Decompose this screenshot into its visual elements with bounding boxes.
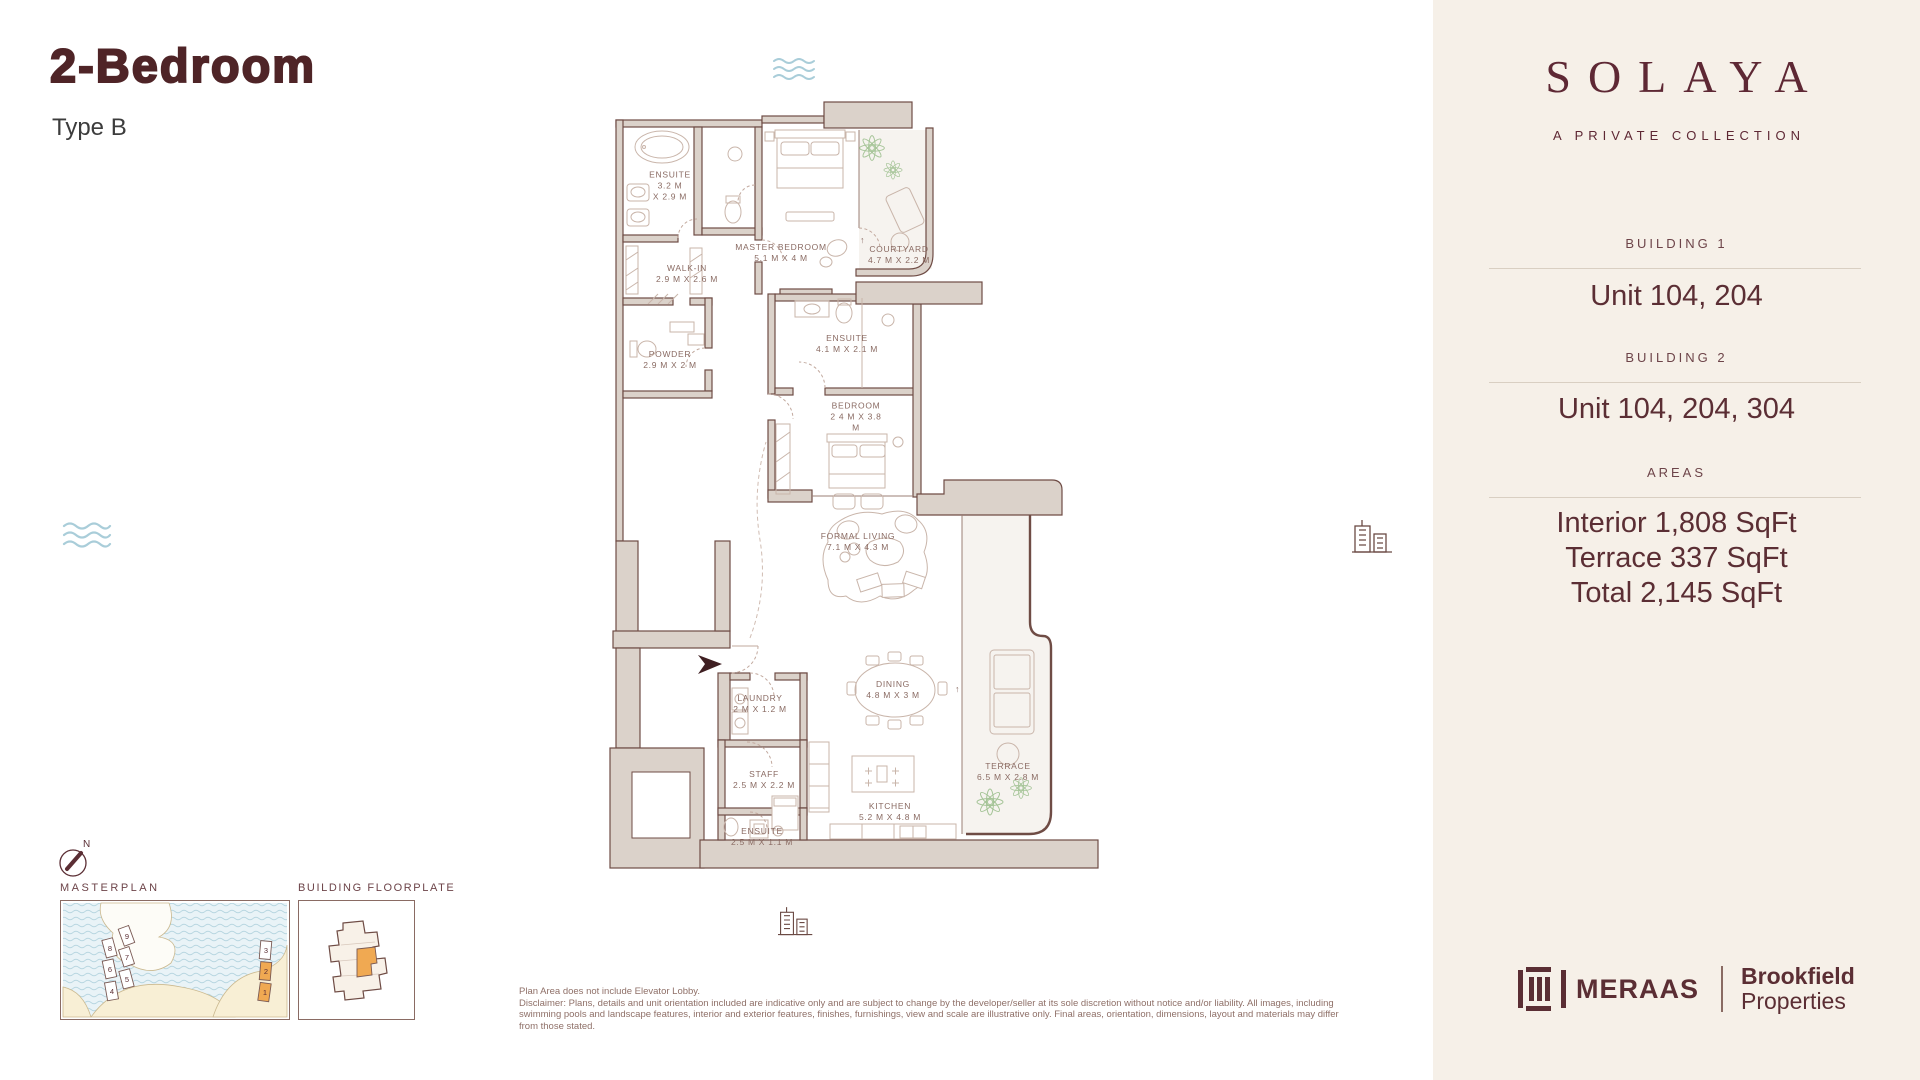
masterplan-label: MASTERPLAN [60, 882, 160, 894]
brookfield-wordmark: Brookfield Properties [1741, 964, 1855, 1014]
compass-n-label: N [83, 839, 90, 850]
floorplate-thumbnail [298, 900, 415, 1020]
compass-icon: N [52, 836, 98, 882]
areas-label: AREAS [1433, 465, 1920, 480]
svg-text:1: 1 [263, 988, 267, 997]
divider [1489, 382, 1861, 383]
svg-text:8: 8 [108, 944, 112, 953]
brand-logo: SOLAYA [1433, 50, 1920, 103]
area-terrace: Terrace 337 SqFt [1433, 541, 1920, 576]
elevator-shaft [632, 772, 690, 838]
wave-icon [60, 520, 112, 550]
masterplan-thumbnail: 8 9 6 7 4 5 3 2 1 [60, 900, 290, 1020]
arrow-up-glyph: ↑ [860, 235, 865, 245]
arrow-up-glyph: ↑ [955, 684, 960, 694]
divider [1489, 268, 1861, 269]
sidebar: SOLAYA A PRIVATE COLLECTION BUILDING 1 U… [1433, 0, 1920, 1080]
building2-label: BUILDING 2 [1433, 350, 1920, 365]
logo-divider [1721, 966, 1723, 1012]
floorplan: ↑ ↑ ENSUITE3.2 M X 2.9 M MASTER BEDROOM5… [600, 90, 1120, 890]
disclaimer: Plan Area does not include Elevator Lobb… [519, 986, 1359, 1032]
page-subtitle: Type B [52, 114, 127, 142]
door-swings [678, 185, 880, 829]
meraas-icon [1518, 967, 1566, 1011]
area-interior: Interior 1,808 SqFt [1433, 506, 1920, 541]
wave-icon [770, 56, 816, 82]
floorplan-drawing: ↑ ↑ [600, 90, 1120, 890]
building1-units: Unit 104, 204 [1433, 280, 1920, 313]
building1-label: BUILDING 1 [1433, 236, 1920, 251]
svg-text:7: 7 [125, 953, 129, 962]
buildings-icon [1352, 516, 1394, 554]
svg-text:2: 2 [264, 967, 268, 976]
meraas-wordmark: MERAAS [1576, 974, 1699, 1005]
brand-tagline: A PRIVATE COLLECTION [1433, 128, 1920, 143]
floorplate-label: BUILDING FLOORPLATE [298, 882, 455, 894]
areas-values: Interior 1,808 SqFt Terrace 337 SqFt Tot… [1433, 506, 1920, 611]
divider [1489, 497, 1861, 498]
svg-text:9: 9 [125, 932, 129, 941]
brochure-page: 2-Bedroom Type B [0, 0, 1920, 1080]
disclaimer-line1: Plan Area does not include Elevator Lobb… [519, 986, 1359, 998]
page-title: 2-Bedroom [50, 38, 316, 93]
area-total: Total 2,145 SqFt [1433, 576, 1920, 611]
svg-text:5: 5 [125, 975, 129, 984]
entry-arrow-icon [698, 655, 722, 674]
building2-units: Unit 104, 204, 304 [1433, 393, 1920, 426]
svg-text:3: 3 [264, 946, 268, 955]
svg-text:6: 6 [108, 965, 112, 974]
partner-logos: MERAAS Brookfield Properties [1518, 964, 1855, 1014]
buildings-icon [778, 903, 814, 937]
svg-text:4: 4 [110, 987, 114, 996]
disclaimer-body: Disclaimer: Plans, details and unit orie… [519, 998, 1359, 1033]
